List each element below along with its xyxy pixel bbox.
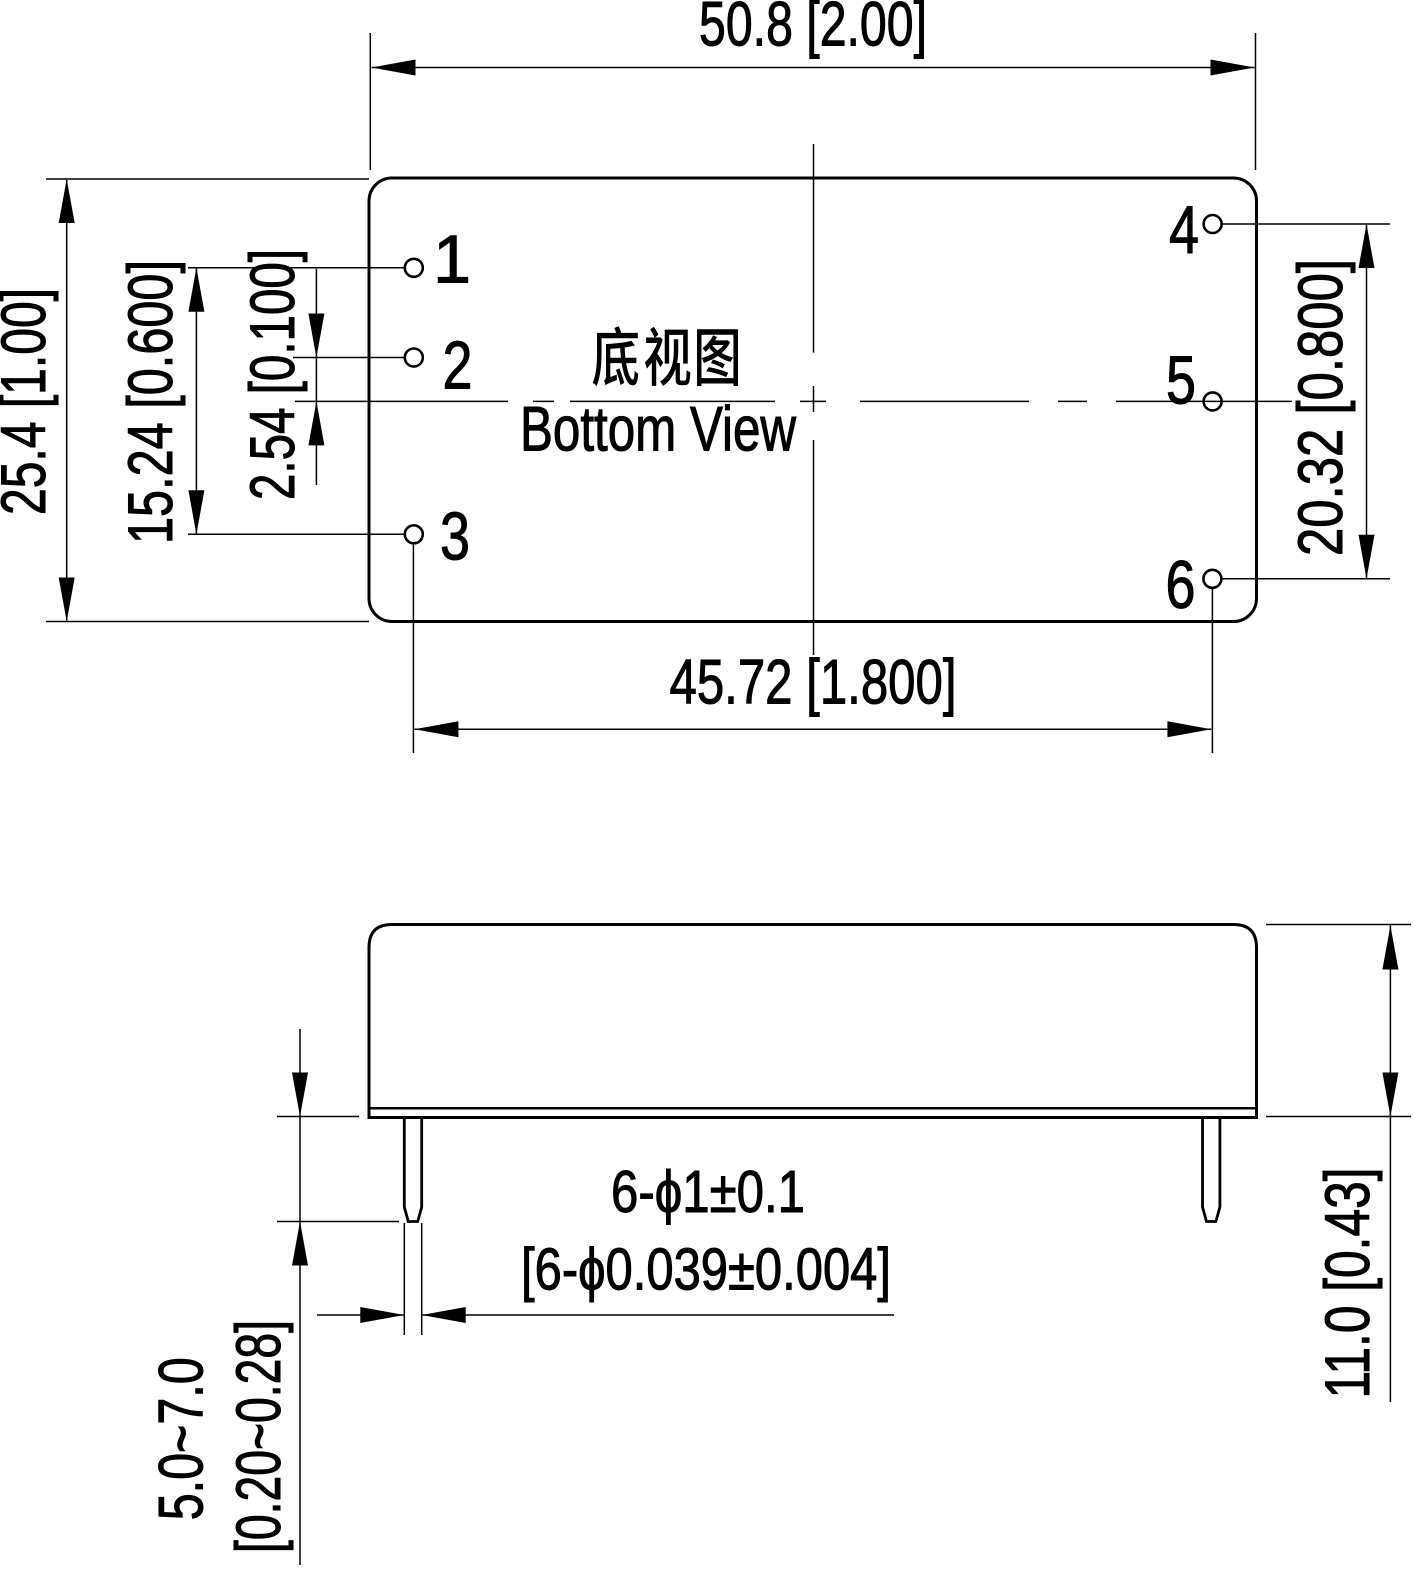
svg-text:5: 5 bbox=[1166, 343, 1196, 419]
svg-text:20.32 [0.800]: 20.32 [0.800] bbox=[1286, 259, 1356, 556]
svg-text:2: 2 bbox=[443, 328, 473, 404]
svg-text:15.24 [0.600]: 15.24 [0.600] bbox=[116, 260, 186, 544]
svg-text:5.0~7.0: 5.0~7.0 bbox=[147, 1357, 217, 1520]
svg-text:4: 4 bbox=[1169, 192, 1199, 268]
svg-text:25.4 [1.00]: 25.4 [1.00] bbox=[0, 288, 59, 515]
svg-text:2.54 [0.100]: 2.54 [0.100] bbox=[238, 249, 308, 500]
svg-text:6-ϕ1±0.1: 6-ϕ1±0.1 bbox=[611, 1159, 805, 1225]
svg-text:Bottom View: Bottom View bbox=[520, 394, 796, 464]
svg-text:50.8 [2.00]: 50.8 [2.00] bbox=[699, 0, 927, 60]
svg-text:11.0 [0.43]: 11.0 [0.43] bbox=[1313, 1168, 1383, 1399]
svg-text:1: 1 bbox=[433, 222, 471, 298]
svg-text:3: 3 bbox=[440, 498, 470, 574]
svg-text:[6-ϕ0.039±0.004]: [6-ϕ0.039±0.004] bbox=[521, 1237, 891, 1303]
svg-text:45.72 [1.800]: 45.72 [1.800] bbox=[670, 648, 957, 718]
svg-text:[0.20~0.28]: [0.20~0.28] bbox=[224, 1320, 294, 1553]
svg-text:6: 6 bbox=[1166, 547, 1196, 623]
